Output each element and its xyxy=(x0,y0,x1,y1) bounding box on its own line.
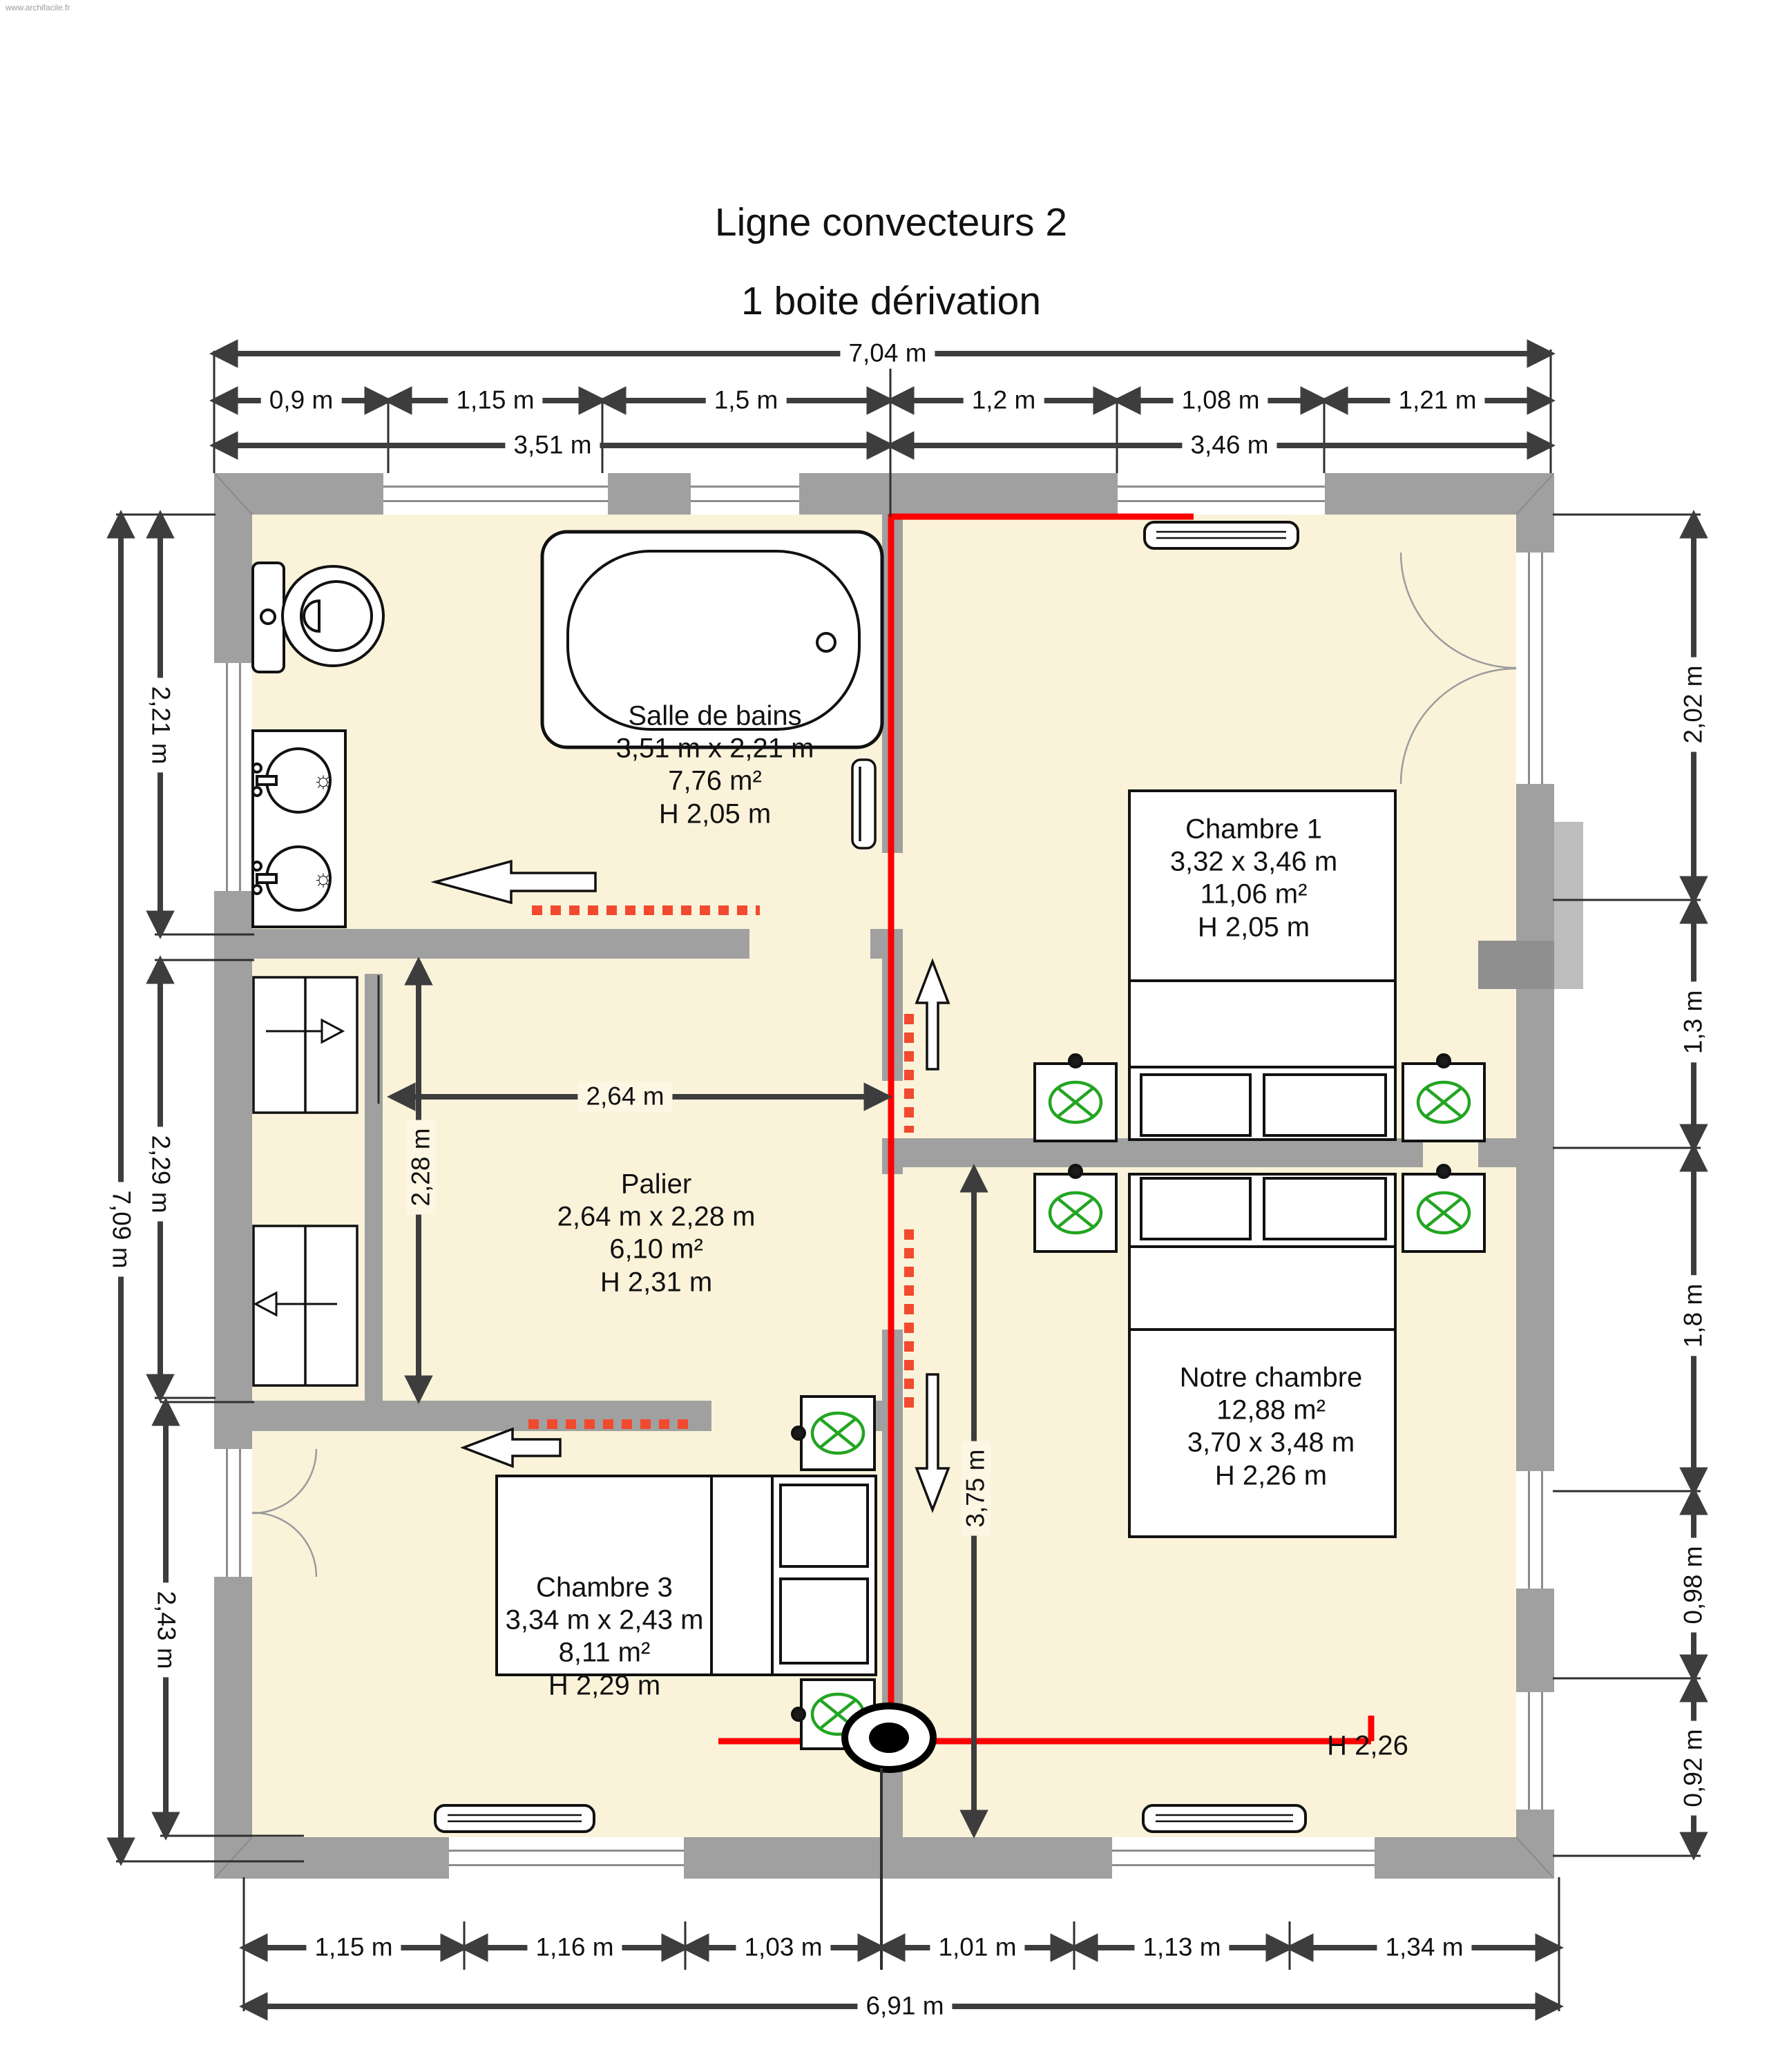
dim-top-seg-3: 1,2 m xyxy=(964,386,1044,416)
arrow-notre-chambre xyxy=(917,1374,948,1510)
convector-heaters-dashed xyxy=(528,910,909,1424)
room-label-chambre1: Chambre 1 3,32 x 3,46 m 11,06 m² H 2,05 … xyxy=(1170,814,1337,944)
room-label-notre-chambre: Notre chambre 12,88 m² 3,70 x 3,48 m H 2… xyxy=(1180,1362,1363,1493)
dim-right-seg-4: 0,92 m xyxy=(1679,1720,1709,1815)
dim-top-seg-0: 0,9 m xyxy=(261,386,342,416)
sink-light-icon: ☼ xyxy=(312,865,334,892)
dim-bottom-seg-3: 1,01 m xyxy=(930,1933,1024,1963)
arrow-chambre3 xyxy=(463,1429,560,1466)
dim-bottom-total: 6,91 m xyxy=(857,1992,952,2022)
dim-right-seg-0: 2,02 m xyxy=(1679,657,1709,751)
dim-left-seg-2: 2,43 m xyxy=(151,1582,181,1677)
arrow-chambre1 xyxy=(917,961,948,1069)
floorplan-page: www.archifacile.fr Ligne convecteurs 2 1… xyxy=(0,0,1769,2072)
closet-boxes xyxy=(254,977,357,1385)
dim-top-half-0: 3,51 m xyxy=(505,431,600,461)
dim-top-half-1: 3,46 m xyxy=(1182,431,1276,461)
dim-left-seg-0: 2,21 m xyxy=(146,678,175,772)
dim-bottom-seg-4: 1,13 m xyxy=(1134,1933,1229,1963)
annotation-h226: H 2,26 xyxy=(1327,1729,1408,1762)
dim-top-total: 7,04 m xyxy=(840,339,935,369)
dim-top-seg-2: 1,5 m xyxy=(706,386,787,416)
room-label-palier: Palier 2,64 m x 2,28 m 6,10 m² H 2,31 m xyxy=(557,1169,756,1299)
dim-top-seg-5: 1,21 m xyxy=(1390,386,1484,416)
dim-right-seg-2: 1,8 m xyxy=(1679,1276,1709,1356)
vanity-double-sink-icon xyxy=(253,731,345,927)
arrow-bathroom xyxy=(435,861,595,903)
plan-graphics xyxy=(0,0,1769,2072)
room-label-chambre3: Chambre 3 3,34 m x 2,43 m 8,11 m² H 2,29… xyxy=(506,1572,704,1702)
dim-bottom-seg-5: 1,34 m xyxy=(1377,1933,1471,1963)
dim-left-seg-1: 2,29 m xyxy=(146,1126,175,1221)
dim-bottom-seg-2: 1,03 m xyxy=(736,1933,830,1963)
dim-left-total: 7,09 m xyxy=(106,1182,136,1276)
room-label-salle-de-bains: Salle de bains 3,51 m x 2,21 m 7,76 m² H… xyxy=(616,700,814,831)
dim-top-seg-1: 1,15 m xyxy=(448,386,542,416)
dim-palier-width: 2,64 m xyxy=(577,1082,672,1112)
dim-bottom-seg-0: 1,15 m xyxy=(306,1933,401,1963)
dim-top-seg-4: 1,08 m xyxy=(1173,386,1268,416)
bathroom-door-leaf xyxy=(852,760,875,848)
junction-box-icon xyxy=(845,1706,933,1769)
dim-right-seg-3: 0,98 m xyxy=(1679,1537,1709,1632)
dim-notre-chambre-height: 3,75 m xyxy=(962,1441,991,1535)
dim-right-seg-1: 1,3 m xyxy=(1679,982,1709,1063)
sink-light-icon: ☼ xyxy=(312,767,334,794)
toilet-icon xyxy=(253,563,383,672)
dim-palier-height: 2,28 m xyxy=(407,1120,437,1214)
dim-bottom-seg-1: 1,16 m xyxy=(527,1933,622,1963)
